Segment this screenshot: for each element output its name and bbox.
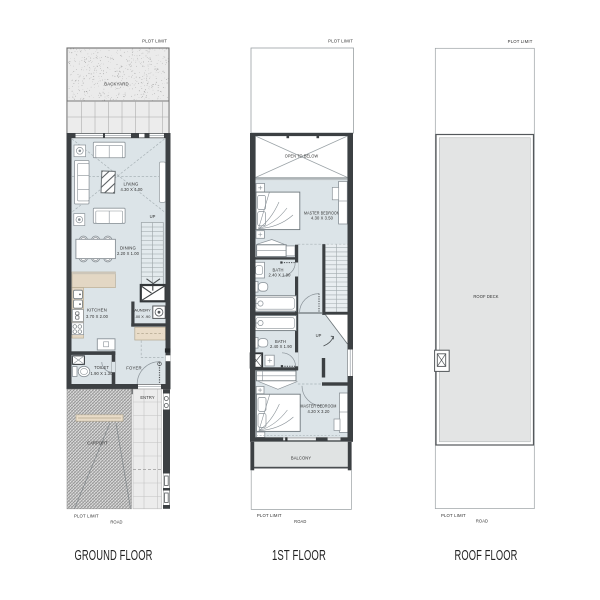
- svg-text:OPEN TO BELOW: OPEN TO BELOW: [285, 154, 319, 159]
- svg-text:BACKYARD: BACKYARD: [104, 82, 129, 87]
- svg-text:TOILET: TOILET: [94, 365, 109, 370]
- svg-text:PLOT LIMIT: PLOT LIMIT: [441, 513, 466, 518]
- svg-text:2.40 X 1.90: 2.40 X 1.90: [268, 272, 291, 277]
- svg-text:2.20 X 1.00: 2.20 X 1.00: [117, 251, 140, 256]
- svg-text:1.90 X 1.30: 1.90 X 1.30: [90, 371, 113, 376]
- svg-text:MASTER BEDROOM: MASTER BEDROOM: [301, 404, 337, 409]
- svg-text:LIVING: LIVING: [124, 181, 139, 186]
- svg-text:4.30 X 4.00: 4.30 X 4.00: [120, 187, 143, 192]
- svg-text:ROAD: ROAD: [476, 519, 488, 524]
- svg-text:CARPORT: CARPORT: [87, 441, 108, 446]
- svg-text:ENTRY: ENTRY: [140, 395, 154, 400]
- svg-text:4.20 X 3.20: 4.20 X 3.20: [307, 409, 330, 414]
- svg-text:UP: UP: [316, 333, 322, 338]
- svg-text:KITCHEN: KITCHEN: [87, 308, 107, 313]
- svg-text:ROOF DECK: ROOF DECK: [473, 294, 498, 299]
- svg-text:1.00 X .90: 1.00 X .90: [133, 314, 152, 319]
- svg-text:DINING: DINING: [120, 245, 136, 250]
- svg-text:1ST FLOOR: 1ST FLOOR: [272, 548, 326, 564]
- svg-text:LAUNDRY: LAUNDRY: [132, 308, 151, 313]
- svg-text:4.30 X 3.50: 4.30 X 3.50: [311, 216, 334, 221]
- svg-text:PLOT LIMIT: PLOT LIMIT: [74, 514, 99, 519]
- svg-text:ROAD: ROAD: [110, 520, 122, 525]
- svg-text:BALCONY: BALCONY: [291, 455, 311, 460]
- svg-text:3.70 X 2.00: 3.70 X 2.00: [86, 314, 109, 319]
- svg-text:FOYER: FOYER: [126, 366, 142, 371]
- svg-text:2.40 X 1.90: 2.40 X 1.90: [270, 344, 293, 349]
- svg-text:PLOT LIMIT: PLOT LIMIT: [257, 513, 282, 518]
- svg-text:GROUND FLOOR: GROUND FLOOR: [75, 548, 153, 564]
- svg-text:ROAD: ROAD: [294, 519, 306, 524]
- svg-text:UP: UP: [150, 214, 156, 219]
- svg-text:PLOT LIMIT: PLOT LIMIT: [142, 39, 167, 44]
- svg-text:PLOT LIMIT: PLOT LIMIT: [508, 39, 533, 44]
- svg-text:PLOT LIMIT: PLOT LIMIT: [328, 39, 353, 44]
- svg-text:ROOF FLOOR: ROOF FLOOR: [455, 548, 518, 564]
